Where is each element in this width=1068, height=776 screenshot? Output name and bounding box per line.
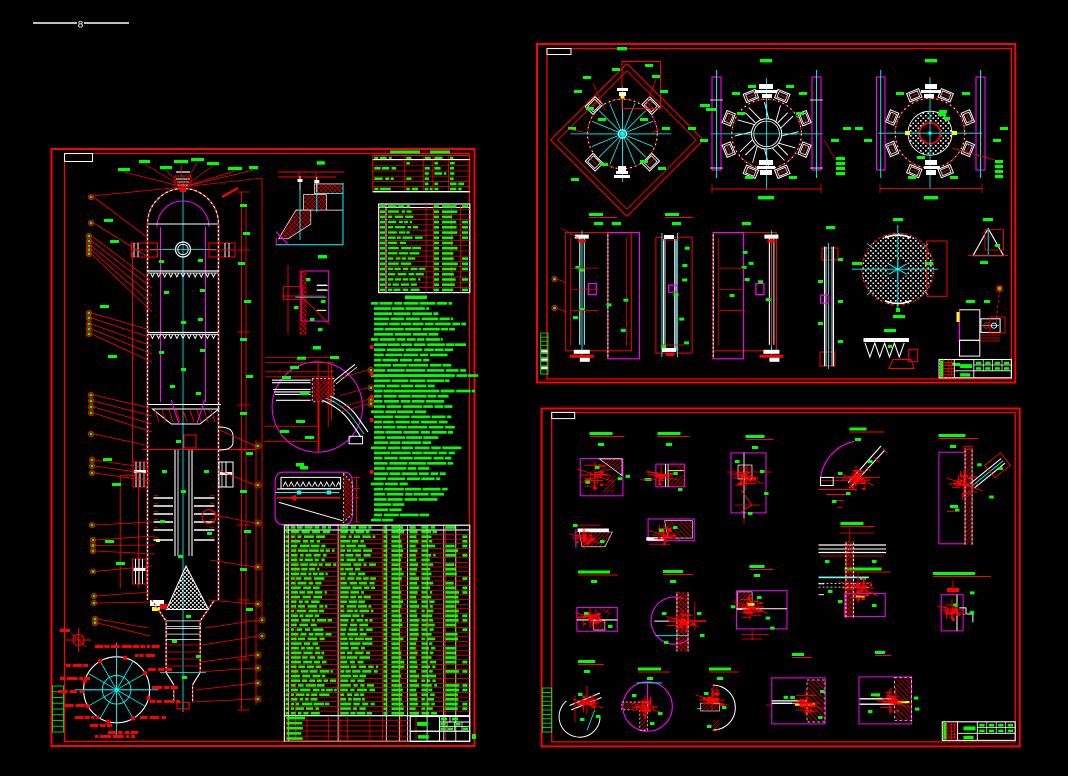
svg-text:8: 8 xyxy=(77,21,83,32)
